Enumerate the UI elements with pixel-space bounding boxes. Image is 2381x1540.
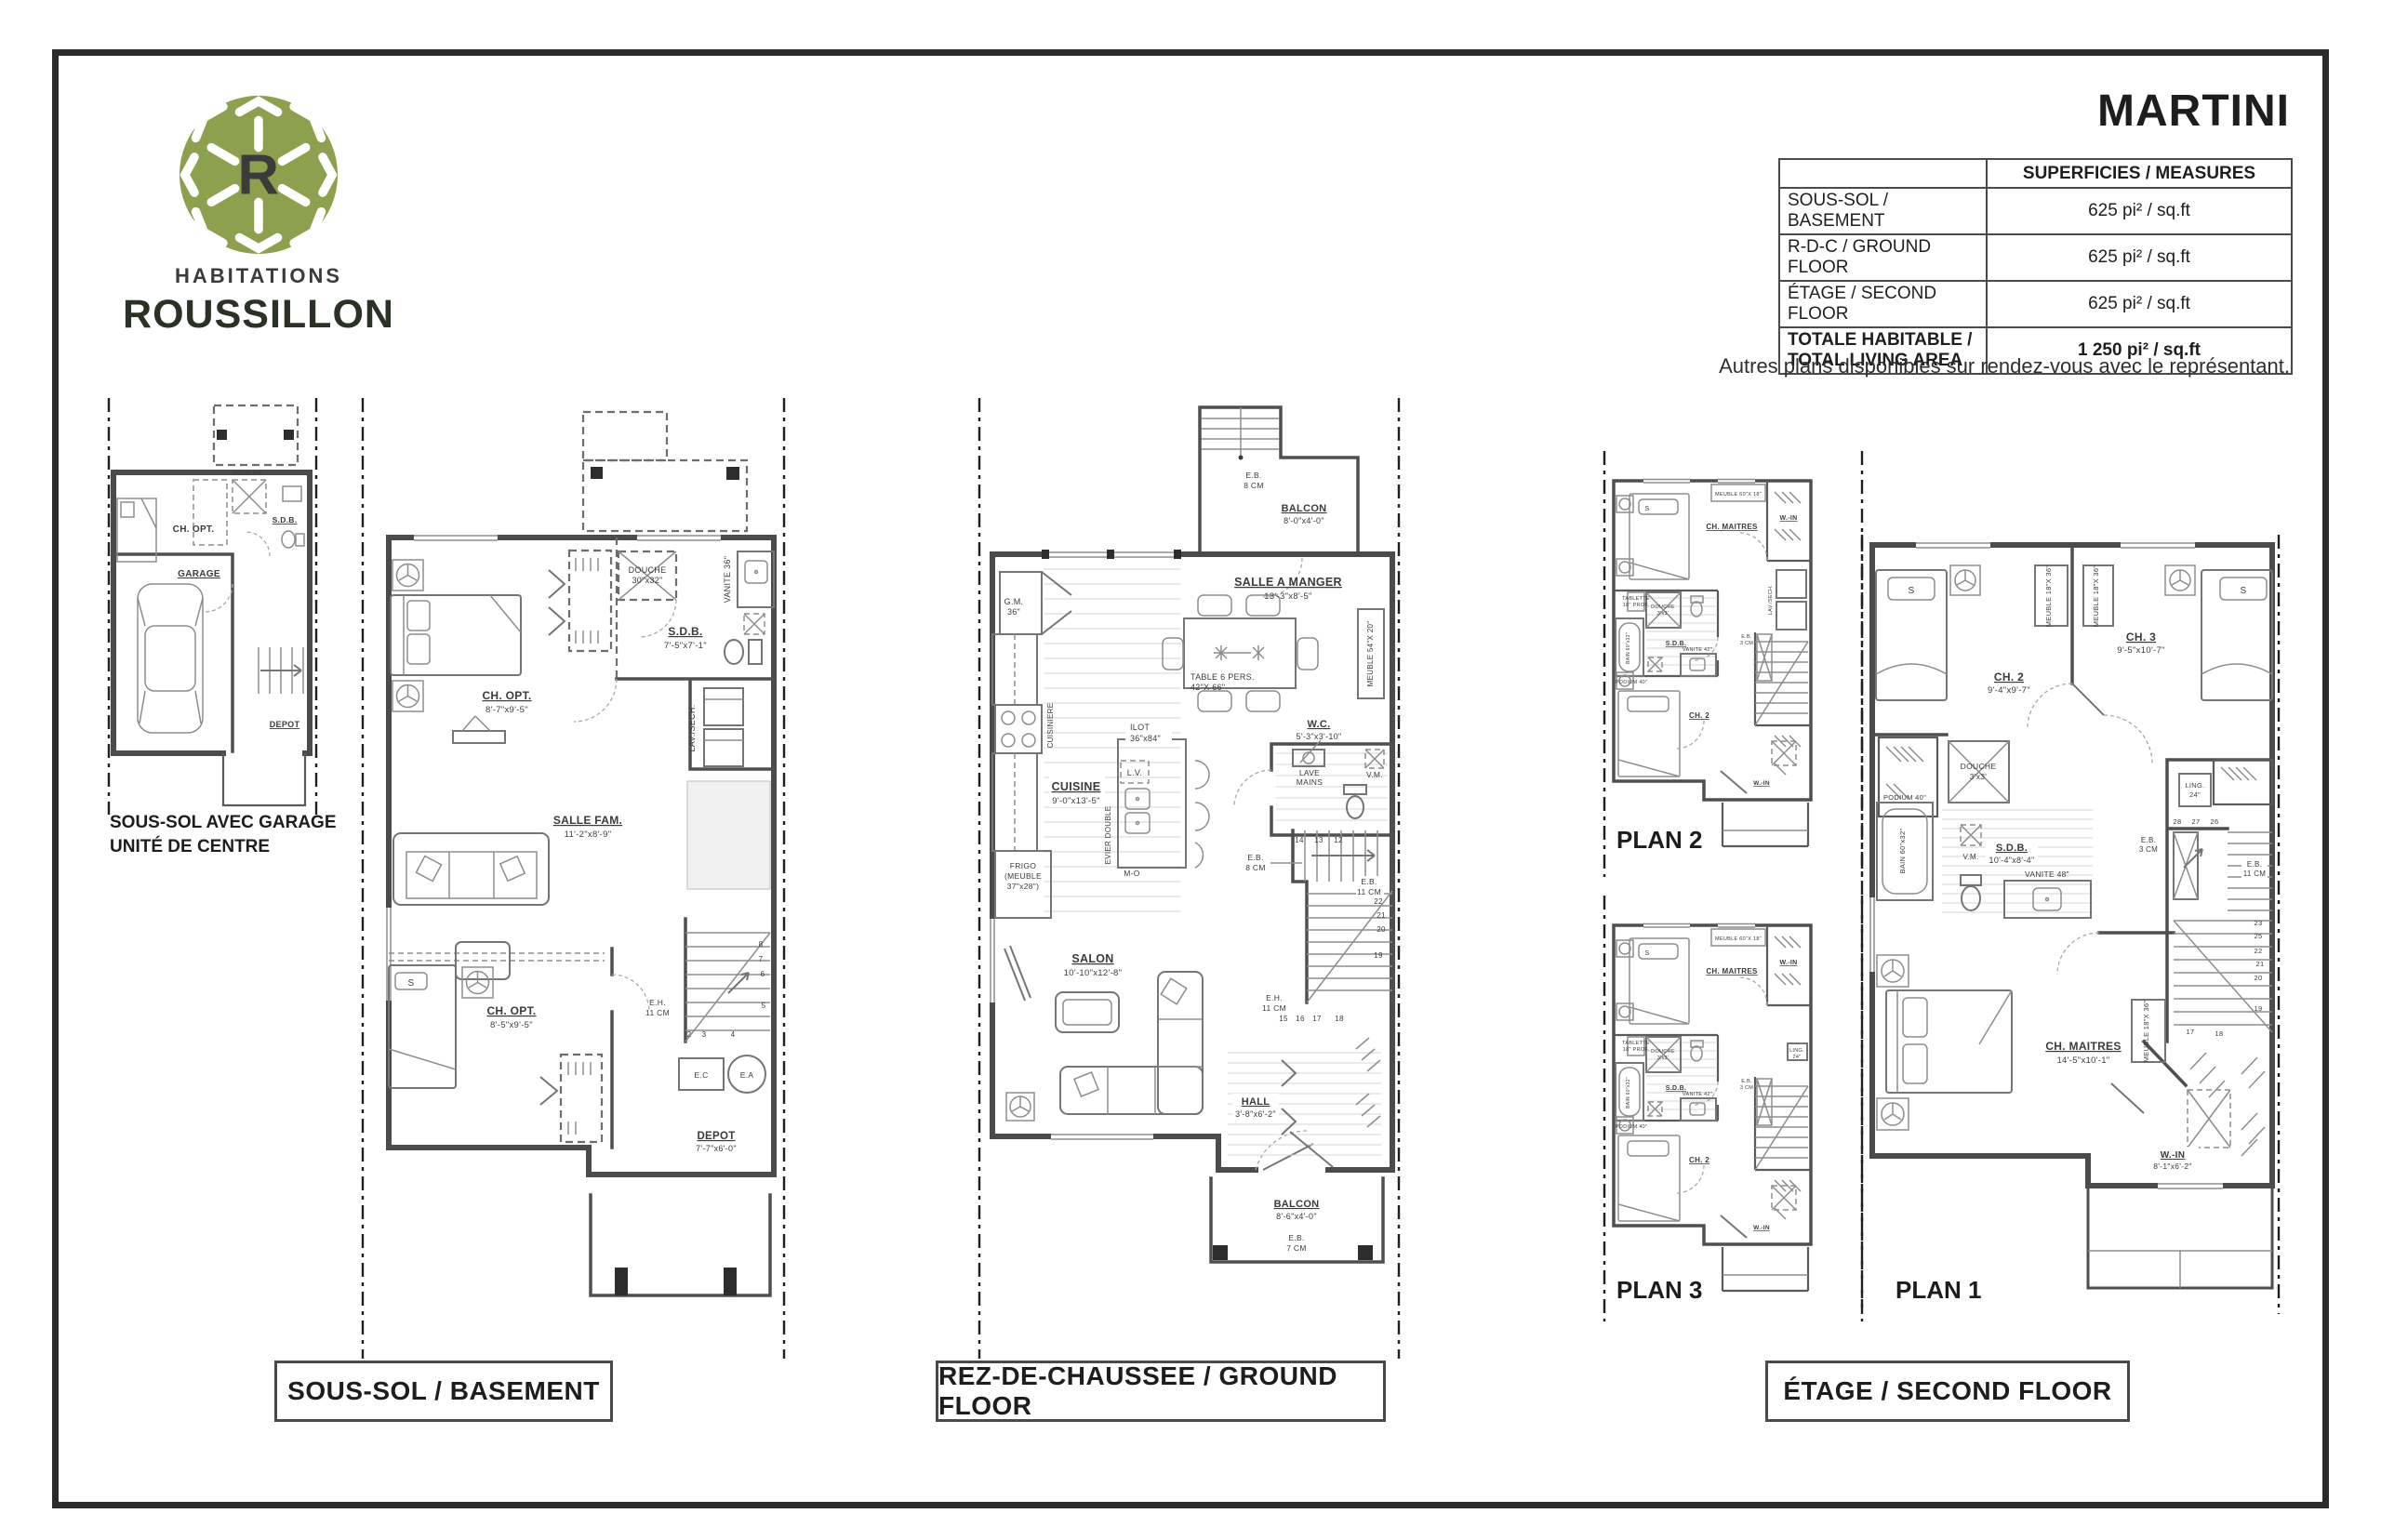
lbl-podium: PODIUM 40" bbox=[1616, 1124, 1648, 1130]
lbl-sallefam: SALLE FAM. bbox=[553, 814, 622, 827]
stair-n: 4 bbox=[731, 1030, 736, 1039]
lbl-sdb-dim: 10'-4"x8'-4" bbox=[1989, 856, 2035, 865]
lbl-s: S bbox=[408, 978, 415, 989]
lbl-eh: E.H. bbox=[1266, 993, 1283, 1002]
lbl-eb32: 3 CM bbox=[2139, 845, 2158, 854]
lbl-ch3: CH. 3 bbox=[2126, 631, 2156, 644]
plan-ground: E.B. 8 CM BALCON 8'-0"x4'-0" SALLE A MAN… bbox=[967, 398, 1446, 1361]
lbl-vanite: VANITE 42" bbox=[1683, 1092, 1712, 1097]
porch bbox=[2088, 1186, 2272, 1288]
lbl-evier: EVIER DOUBLE bbox=[1104, 806, 1112, 865]
stair-n: 2 bbox=[687, 1030, 692, 1039]
lbl-douche: DOUCHE bbox=[1651, 1049, 1675, 1055]
lbl-balcon-dim: 8'-0"x4'-0" bbox=[1284, 516, 1324, 525]
balcony-top bbox=[1200, 407, 1358, 554]
table-row-label: R-D-C / GROUND FLOOR bbox=[1779, 234, 1987, 281]
lbl-eb112: 11 CM bbox=[2243, 870, 2267, 878]
lbl-s: S bbox=[2241, 586, 2247, 596]
media-unit bbox=[453, 716, 505, 743]
lbl-meuble: MEUBLE 60"X 18" bbox=[1715, 936, 1762, 942]
lbl-meuble: MEUBLE 18"X 36" bbox=[2142, 1001, 2150, 1063]
lbl-douche2: 3'x3' bbox=[1970, 772, 1988, 781]
lbl-ling: LING. bbox=[1789, 1048, 1804, 1054]
porch-outline bbox=[583, 412, 747, 531]
lbl-ling: LING. bbox=[2185, 781, 2204, 790]
lbl-bain: BAIN 60"x32" bbox=[1626, 1077, 1631, 1109]
lbl-frigo2: (MEUBLE bbox=[1004, 871, 1042, 881]
lbl-chm: CH. MAITRES bbox=[1706, 523, 1758, 531]
caption-ground: REZ-DE-CHAUSSEE / GROUND FLOOR bbox=[936, 1361, 1386, 1422]
lbl-win: W.-IN bbox=[1780, 960, 1798, 966]
lbl-eb2: 3 CM bbox=[1740, 641, 1753, 646]
lbl-cuisine-dim: 9'-0"x13'-5" bbox=[1052, 796, 1099, 806]
lbl-ebA2: 8 CM bbox=[1245, 863, 1266, 872]
laundry bbox=[1776, 570, 1806, 630]
room-ch-opt: CH. OPT. bbox=[173, 524, 215, 535]
bed-bottom bbox=[1616, 672, 1680, 777]
lbl-eb: E.B. bbox=[1741, 634, 1752, 640]
lbl-lav: LAV./SECH. bbox=[687, 704, 697, 751]
lbl-win: W.-IN bbox=[1780, 515, 1798, 522]
stairs bbox=[1755, 1079, 1808, 1170]
table-row-label: SOUS-SOL / BASEMENT bbox=[1779, 188, 1987, 234]
lbl-chopt-dim: 8'-7"x9'-5" bbox=[486, 705, 528, 715]
lbl-ch2: CH. 2 bbox=[1994, 670, 2024, 684]
lbl-eb3: E.B. bbox=[2141, 836, 2156, 844]
lbl-douche-dim: 30"x32" bbox=[632, 576, 662, 585]
stair-n: 19 bbox=[1374, 951, 1383, 960]
plan-unit2: CH. MAITRES MEUBLE 60"X 18" W.-IN TABLET… bbox=[1592, 451, 1871, 879]
stair-n: 21 bbox=[1377, 911, 1386, 920]
lbl-cuisine: CUISINE bbox=[1052, 780, 1101, 793]
lbl-salle-dim: 13'-3"x8'-5" bbox=[1264, 591, 1311, 602]
plan-basement-garage: CH. OPT. DOUCHE GARAGE S.D.B. DEPOT bbox=[93, 398, 365, 816]
stair-n: 15 bbox=[1279, 1015, 1288, 1023]
stair-n: 5 bbox=[762, 1002, 766, 1010]
lbl-meuble: MEUBLE 18"X 36" bbox=[2092, 565, 2100, 628]
bath-fixtures bbox=[193, 480, 304, 548]
stairs bbox=[685, 781, 770, 1042]
page-title: MARTINI bbox=[2097, 86, 2290, 137]
lbl-tablette2: 18" PROF. bbox=[1623, 1047, 1650, 1053]
lbl-chm-dim: 14'-5"x10'-1" bbox=[2056, 1055, 2109, 1066]
lbl-vm: V.M. bbox=[1366, 770, 1383, 779]
room-sdb: S.D.B. bbox=[273, 515, 298, 524]
lbl-ilot2: 36"x84" bbox=[1130, 734, 1161, 743]
stair-n: 21 bbox=[2256, 960, 2265, 968]
stair-n: 17 bbox=[2187, 1028, 2195, 1036]
lbl-cuisiniere: CUISINIERE bbox=[1046, 703, 1055, 749]
lbl-ec: E.C bbox=[694, 1070, 708, 1080]
stairs bbox=[1267, 830, 1392, 1002]
table-header: SUPERFICIES / MEASURES bbox=[1987, 159, 2292, 188]
stair-n: 18 bbox=[2215, 1029, 2224, 1038]
lbl-ch3-dim: 9'-5"x10'-7" bbox=[2117, 645, 2164, 656]
stair-n: 25 bbox=[2255, 932, 2263, 940]
lbl-lave2: MAINS bbox=[1297, 777, 1323, 787]
lbl-win: W.-IN bbox=[2161, 1150, 2186, 1161]
lbl-meuble: MEUBLE 18"X 36" bbox=[2044, 565, 2053, 628]
lbl-eb-bot: E.B. bbox=[1288, 1233, 1304, 1242]
lbl-s: S bbox=[1645, 506, 1650, 512]
stair-n: 22 bbox=[1374, 897, 1383, 906]
lbl-eb2: 8 CM bbox=[1244, 481, 1264, 490]
lbl-lv: L.V. bbox=[1127, 768, 1142, 777]
table-row-value: 625 pi² / sq.ft bbox=[1987, 281, 2292, 327]
stair-n: 7 bbox=[759, 955, 764, 963]
lot-lines bbox=[979, 398, 1399, 1359]
lbl-win2: W.-IN bbox=[1753, 1225, 1770, 1231]
stair-n: 14 bbox=[1295, 836, 1304, 844]
lbl-chopt2: CH. OPT. bbox=[486, 1004, 536, 1017]
stair-n: 12 bbox=[1334, 836, 1343, 844]
lbl-eh: E.H. bbox=[649, 998, 666, 1007]
bed-single bbox=[389, 965, 493, 1088]
lbl-gm: G.M. bbox=[1004, 597, 1024, 606]
stair-n: 23 bbox=[2255, 919, 2263, 927]
bedroom-top-left bbox=[1876, 565, 2068, 700]
lbl-eb: E.B. bbox=[1245, 471, 1261, 480]
lbl-eb2: 3 CM bbox=[1740, 1085, 1753, 1091]
lbl-eh2: 11 CM bbox=[1262, 1003, 1286, 1013]
lbl-podium: PODIUM 40" bbox=[1883, 793, 1926, 802]
lbl-table: TABLE 6 PERS. bbox=[1190, 672, 1255, 682]
lbl-s: S bbox=[1645, 950, 1650, 957]
stair-n: 20 bbox=[1377, 925, 1386, 934]
tag-plan2: PLAN 2 bbox=[1616, 826, 1702, 855]
lbl-tablette2: 18" PROF. bbox=[1623, 603, 1650, 608]
table-row-value: 625 pi² / sq.ft bbox=[1987, 234, 2292, 281]
stair-n: 19 bbox=[2255, 1004, 2263, 1013]
optional-wall bbox=[389, 953, 605, 961]
lbl-douche2: 3'x3' bbox=[1657, 611, 1669, 617]
lbl-vanite: VANITE 36" bbox=[723, 556, 732, 604]
lbl-ch2: CH. 2 bbox=[1689, 711, 1709, 720]
stair-n: 28 bbox=[2174, 817, 2182, 826]
lbl-sdb-dim: 7'-5"x7'-1" bbox=[664, 641, 707, 651]
dining bbox=[1163, 595, 1318, 711]
lot-lines bbox=[1862, 535, 2279, 1314]
lbl-eh2: 11 CM bbox=[645, 1008, 670, 1017]
logo-monogram: R bbox=[238, 143, 280, 207]
lbl-douche: DOUCHE bbox=[1961, 762, 1997, 771]
stairs bbox=[1755, 634, 1808, 725]
lbl-win2: W.-IN bbox=[1753, 780, 1770, 787]
lbl-eb: E.B. bbox=[1741, 1079, 1752, 1084]
lbl-ebB: E.B. bbox=[1361, 877, 1377, 886]
stair-n: 13 bbox=[1314, 836, 1324, 844]
caption-basement: SOUS-SOL / BASEMENT bbox=[274, 1361, 613, 1422]
lbl-sdb: S.D.B. bbox=[1666, 1085, 1686, 1092]
lbl-vm: V.M. bbox=[1963, 853, 1979, 861]
lbl-ling2: 24" bbox=[1793, 1055, 1802, 1060]
brochure-page: R HABITATIONS ROUSSILLON MARTINI SUPERFI… bbox=[0, 0, 2381, 1540]
lbl-sdb: S.D.B. bbox=[1666, 641, 1686, 647]
lbl-ebB2: 11 CM bbox=[1357, 887, 1381, 896]
island bbox=[1118, 739, 1209, 868]
bed-top bbox=[1616, 938, 1689, 1024]
stair-n: 17 bbox=[1312, 1015, 1322, 1023]
bed bbox=[117, 498, 156, 562]
lbl-bain: BAIN 60"x32" bbox=[1898, 828, 1907, 873]
lbl-sdb: S.D.B. bbox=[668, 625, 702, 638]
closet-left bbox=[1879, 737, 1937, 816]
master-bedroom bbox=[1877, 955, 2165, 1130]
bed-top bbox=[1616, 494, 1689, 579]
lbl-balcon-b: BALCON bbox=[1274, 1199, 1320, 1210]
lbl-ling2: 24" bbox=[2189, 790, 2201, 799]
exterior-walls bbox=[989, 550, 1392, 1170]
room-douche: DOUCHE bbox=[233, 471, 262, 477]
lbl-tablette: TABLETTE bbox=[1622, 1041, 1650, 1046]
porch-outline bbox=[214, 405, 298, 465]
lbl-ch2-dim: 9'-4"x9'-7" bbox=[1988, 685, 2030, 696]
availability-note: Autres plans disponibles sur rendez-vous… bbox=[1719, 354, 2290, 378]
bathroom bbox=[617, 538, 774, 679]
bed-bottom bbox=[1616, 1117, 1680, 1221]
closet bbox=[549, 551, 611, 651]
lbl-balcon: BALCON bbox=[1282, 503, 1327, 514]
plan-basement: DOUCHE 30"x32" VANITE 36" S.D.B. 7'-5"x7… bbox=[358, 398, 800, 1361]
logo-mark: R bbox=[180, 96, 338, 254]
lbl-table2: 42"X 66" bbox=[1190, 683, 1225, 692]
stair-n: 6 bbox=[761, 970, 765, 978]
tag-plan1: PLAN 1 bbox=[1895, 1276, 1981, 1305]
tag-plan3: PLAN 3 bbox=[1616, 1276, 1702, 1305]
lbl-salle: SALLE A MANGER bbox=[1234, 576, 1342, 589]
lbl-meuble: MEUBLE 54"X 20" bbox=[1366, 621, 1375, 687]
lbl-salon-dim: 10'-10"x12'-8" bbox=[1064, 968, 1123, 978]
lbl-chm: CH. MAITRES bbox=[2045, 1040, 2121, 1053]
stair-n: 3 bbox=[702, 1030, 707, 1039]
lbl-lave: LAVE bbox=[1299, 768, 1320, 777]
lbl-podium: PODIUM 40" bbox=[1616, 680, 1648, 685]
lbl-frigo3: 37"x28") bbox=[1007, 882, 1039, 891]
porch bbox=[1723, 803, 1808, 846]
table-row-value: 625 pi² / sq.ft bbox=[1987, 188, 2292, 234]
stair-n: 8 bbox=[759, 940, 764, 949]
plan-etage: CH. 2 9'-4"x9'-7" CH. 3 9'-5"x10'-7" S S… bbox=[1860, 535, 2330, 1316]
laundry-closet bbox=[690, 682, 774, 769]
brand-logo-icon: R bbox=[177, 93, 340, 257]
wc-room bbox=[1271, 740, 1392, 835]
stair-n: 26 bbox=[2211, 817, 2219, 826]
bath bbox=[1877, 803, 2093, 918]
lbl-salon: SALON bbox=[1071, 952, 1113, 965]
brand-roussillon: ROUSSILLON bbox=[91, 292, 426, 338]
stair-n: 22 bbox=[2255, 947, 2263, 955]
lbl-vanite: VANITE 48" bbox=[2025, 870, 2069, 879]
table-row-label: ÉTAGE / SECOND FLOOR bbox=[1779, 281, 1987, 327]
measures-table: SUPERFICIES / MEASURES SOUS-SOL / BASEME… bbox=[1778, 158, 2293, 375]
plan-unit3: CH. MAITRES MEUBLE 60"X 18" W.-IN TABLET… bbox=[1592, 896, 1871, 1323]
lbl-frigo: FRIGO bbox=[1010, 861, 1037, 870]
lbl-eb-bot2: 7 CM bbox=[1286, 1243, 1307, 1253]
lower-closet bbox=[540, 1055, 602, 1142]
lbl-ebA: E.B. bbox=[1247, 853, 1263, 862]
lbl-wc-dim: 5'-3"x3'-10" bbox=[1297, 732, 1342, 741]
car bbox=[138, 584, 203, 733]
lbl-balcon-b-dim: 8'-6"x4'-0" bbox=[1276, 1212, 1317, 1221]
lbl-gm2: 36" bbox=[1007, 607, 1020, 617]
brand-habitations: HABITATIONS bbox=[119, 264, 398, 288]
lbl-s: S bbox=[1909, 586, 1915, 596]
lbl-ea: E.A bbox=[740, 1070, 754, 1080]
lbl-ch2: CH. 2 bbox=[1689, 1156, 1709, 1164]
lbl-douche: DOUCHE bbox=[629, 565, 667, 575]
lbl-depot: DEPOT bbox=[697, 1131, 735, 1142]
lbl-douche2: 3'x3' bbox=[1657, 1055, 1669, 1061]
stair-n: 18 bbox=[1335, 1015, 1344, 1023]
lbl-meuble: MEUBLE 60"X 18" bbox=[1715, 492, 1762, 498]
lbl-sdb: S.D.B. bbox=[1996, 843, 2028, 854]
lbl-hall: HALL bbox=[1242, 1096, 1270, 1108]
lbl-depot-dim: 7'-7"x6'-0" bbox=[696, 1144, 737, 1153]
lbl-chopt2-dim: 8'-5"x9'-5" bbox=[490, 1020, 533, 1030]
lbl-vanite: VANITE 42" bbox=[1683, 647, 1712, 653]
lbl-tablette: TABLETTE bbox=[1622, 596, 1650, 602]
lbl-hall-dim: 3'-8"x6'-2" bbox=[1235, 1109, 1276, 1119]
walkin bbox=[2188, 1053, 2265, 1156]
porch bbox=[1723, 1247, 1808, 1291]
lbl-lav: LAV./SECH. bbox=[1768, 585, 1774, 616]
sofa bbox=[393, 833, 549, 905]
room-depot: DEPOT bbox=[270, 720, 300, 729]
caption-etage: ÉTAGE / SECOND FLOOR bbox=[1765, 1361, 2130, 1422]
lbl-wc: W.C. bbox=[1307, 719, 1330, 730]
door-arcs bbox=[574, 600, 676, 1012]
lbl-chopt: CH. OPT. bbox=[482, 689, 531, 702]
rear-porch bbox=[591, 1195, 770, 1295]
lbl-douche: DOUCHE bbox=[1651, 604, 1675, 610]
lbl-win-dim: 8'-1"x6'-2" bbox=[2153, 1162, 2191, 1171]
lbl-bain: BAIN 60"x32" bbox=[1626, 632, 1631, 664]
lbl-ilot: ILOT bbox=[1130, 723, 1150, 732]
stair-n: 27 bbox=[2192, 817, 2201, 826]
lbl-mo: M-O bbox=[1124, 869, 1140, 878]
lbl-chm: CH. MAITRES bbox=[1706, 967, 1758, 976]
stair-n: 20 bbox=[2255, 974, 2263, 982]
bed-double bbox=[391, 595, 521, 675]
small-plan-caption: SOUS-SOL AVEC GARAGEUNITÉ DE CENTRE bbox=[110, 811, 337, 858]
stair-n: 16 bbox=[1296, 1015, 1305, 1023]
lbl-sallefam-dim: 11'-2"x8'-9" bbox=[565, 830, 612, 840]
room-garage: GARAGE bbox=[178, 569, 220, 579]
stairs bbox=[259, 647, 303, 694]
lbl-eb11: E.B. bbox=[2247, 860, 2262, 869]
